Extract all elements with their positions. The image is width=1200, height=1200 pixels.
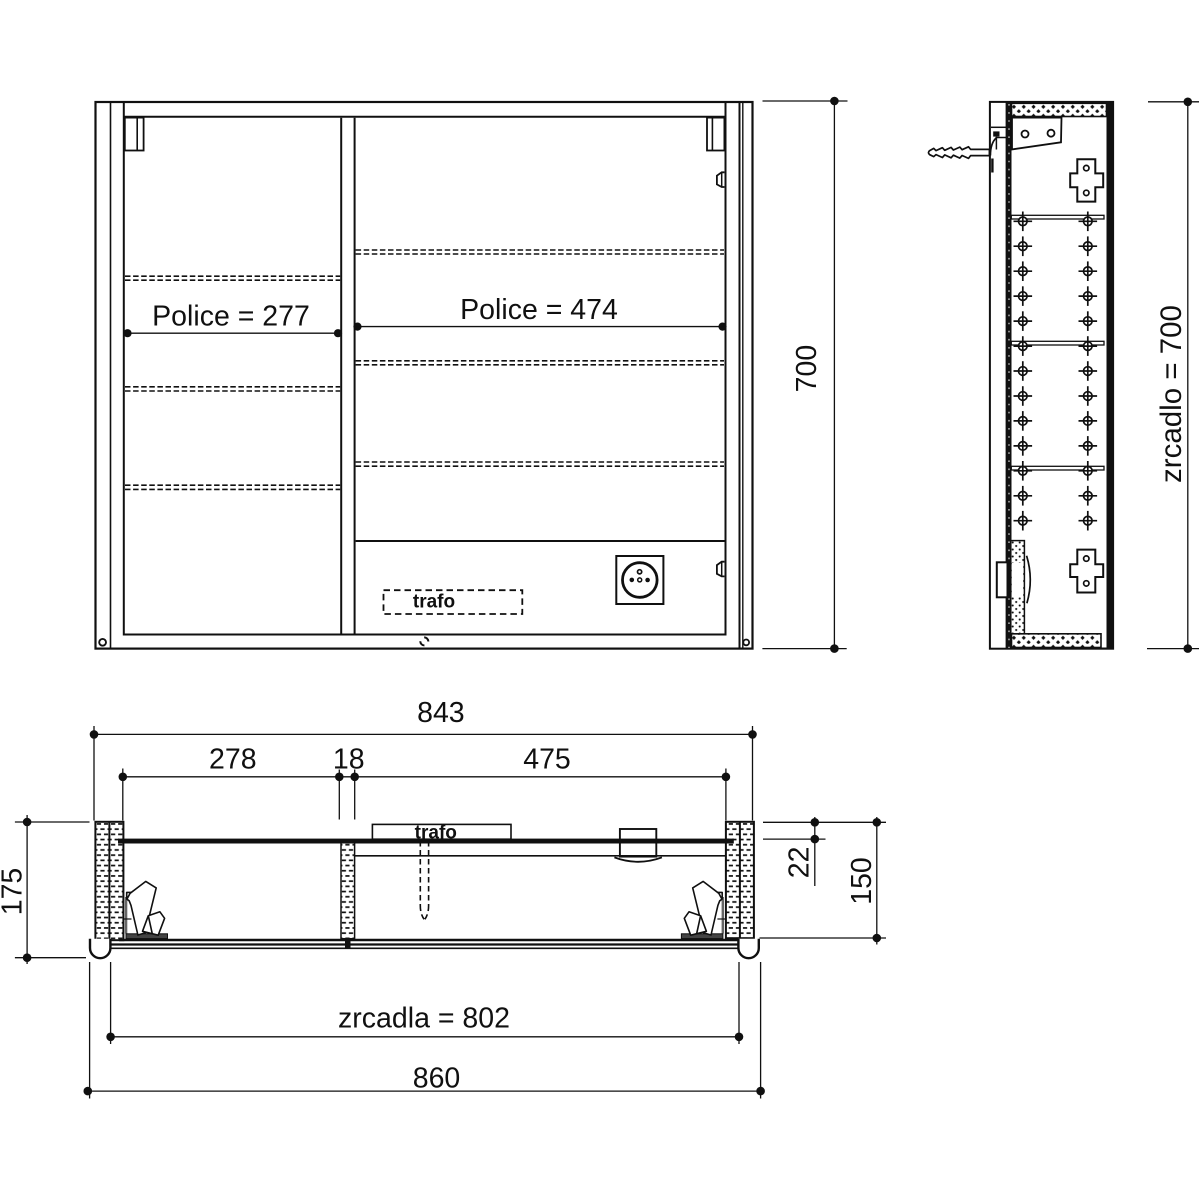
svg-text:22: 22 [783, 847, 815, 879]
svg-text:150: 150 [846, 857, 878, 905]
svg-text:Police = 277: Police = 277 [152, 301, 310, 333]
svg-text:278: 278 [209, 743, 257, 775]
svg-text:zrcadla = 802: zrcadla = 802 [338, 1002, 510, 1034]
svg-text:zrcadlo = 700: zrcadlo = 700 [1155, 305, 1188, 483]
svg-text:trafo: trafo [413, 592, 455, 613]
svg-text:700: 700 [791, 345, 823, 393]
svg-text:475: 475 [523, 743, 571, 775]
svg-text:860: 860 [413, 1063, 461, 1095]
svg-text:175: 175 [0, 868, 28, 916]
svg-text:843: 843 [417, 697, 465, 729]
svg-text:Police = 474: Police = 474 [460, 294, 618, 326]
svg-text:18: 18 [333, 743, 365, 775]
